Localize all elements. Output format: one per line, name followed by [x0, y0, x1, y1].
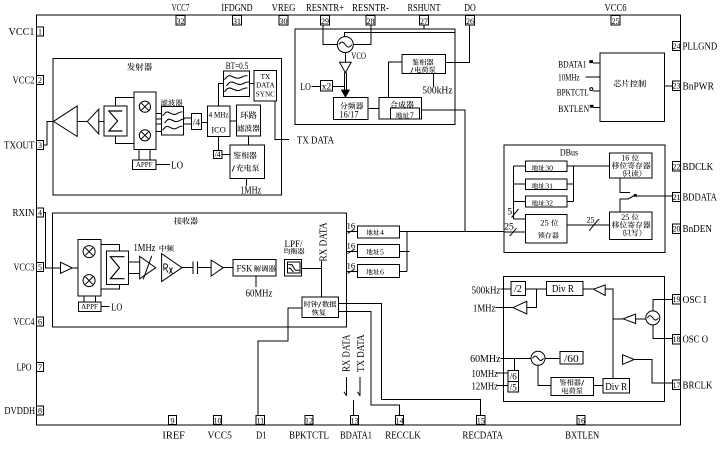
svg-text:D1: D1: [256, 430, 267, 442]
svg-text:60MHz: 60MHz: [470, 354, 501, 365]
svg-text:Div R: Div R: [552, 284, 574, 295]
svg-text:LO: LO: [171, 160, 183, 171]
svg-text:BPKTCTL: BPKTCTL: [557, 88, 589, 99]
svg-text:25: 25: [540, 218, 549, 228]
svg-text:BDCLK: BDCLK: [683, 161, 714, 173]
svg-text:VCC6: VCC6: [605, 2, 627, 14]
svg-text:LPO: LPO: [17, 362, 32, 374]
svg-text:TX: TX: [261, 73, 271, 81]
svg-text:5: 5: [38, 263, 42, 272]
svg-text:10MHz: 10MHz: [558, 72, 580, 83]
svg-text:21: 21: [673, 193, 681, 202]
svg-text:APPF: APPF: [81, 303, 98, 311]
svg-text:VCC7: VCC7: [172, 2, 190, 14]
svg-text:TX DATA: TX DATA: [356, 334, 367, 372]
svg-text:/4: /4: [215, 150, 221, 159]
svg-text:25: 25: [621, 213, 629, 222]
svg-text:SYNC: SYNC: [256, 90, 275, 98]
svg-text:32: 32: [545, 199, 553, 208]
svg-text:16/17: 16/17: [340, 110, 359, 120]
svg-text:25: 25: [504, 222, 514, 232]
svg-text:RECDATA: RECDATA: [462, 430, 503, 442]
svg-text:VCO: VCO: [351, 52, 366, 62]
svg-text:Div R: Div R: [605, 382, 627, 393]
svg-text:23: 23: [673, 82, 681, 91]
svg-text:500kHz: 500kHz: [422, 86, 453, 97]
svg-text:BDDATA: BDDATA: [683, 192, 718, 204]
svg-text:5: 5: [380, 247, 384, 256]
svg-text:12MHz: 12MHz: [472, 382, 499, 393]
svg-text:/2: /2: [514, 284, 522, 295]
svg-text:DO: DO: [464, 2, 476, 14]
svg-text:RXIN: RXIN: [13, 207, 35, 219]
svg-text:2: 2: [38, 76, 42, 85]
svg-text:TX DATA: TX DATA: [297, 136, 335, 147]
svg-text:BXTLEN: BXTLEN: [565, 430, 599, 442]
svg-text:x2: x2: [322, 82, 332, 92]
svg-text:VCC4: VCC4: [14, 316, 35, 328]
svg-text:RX DATA: RX DATA: [342, 334, 353, 372]
svg-text:/5: /5: [510, 382, 518, 392]
svg-text:10MHz: 10MHz: [472, 369, 499, 380]
svg-text:APPF: APPF: [136, 161, 153, 169]
svg-text:17: 17: [673, 381, 681, 390]
svg-text:26: 26: [466, 17, 474, 26]
svg-text:RESNTR+: RESNTR+: [306, 2, 344, 14]
svg-text:500kHz: 500kHz: [472, 285, 501, 296]
svg-text:IREF: IREF: [162, 430, 185, 442]
svg-text:7: 7: [38, 363, 42, 372]
svg-text:PLLGND: PLLGND: [683, 41, 718, 53]
svg-text:60MHz: 60MHz: [246, 288, 273, 299]
svg-text:24: 24: [673, 42, 681, 51]
svg-text:14: 14: [396, 416, 404, 425]
svg-text:FSK: FSK: [237, 263, 253, 273]
svg-text:LO: LO: [111, 303, 122, 314]
svg-text:TXOUT: TXOUT: [4, 140, 35, 152]
svg-text:RX DATA: RX DATA: [318, 222, 329, 262]
svg-text:25: 25: [612, 17, 620, 26]
svg-text:10: 10: [214, 416, 222, 425]
svg-text:BDATA1: BDATA1: [558, 60, 586, 71]
svg-text:ICO: ICO: [211, 124, 226, 134]
svg-text:30: 30: [545, 163, 553, 172]
svg-text:VCC2: VCC2: [13, 75, 35, 87]
svg-text:/60: /60: [564, 354, 579, 365]
svg-text:22: 22: [673, 162, 681, 171]
svg-text:30: 30: [280, 17, 288, 26]
svg-text:VREG: VREG: [272, 2, 296, 14]
svg-text:28: 28: [367, 17, 375, 26]
svg-text:16: 16: [621, 154, 629, 163]
svg-text:25: 25: [587, 215, 595, 224]
svg-text:LO: LO: [300, 82, 311, 93]
svg-text:4: 4: [380, 228, 384, 237]
svg-text:RESNTR-: RESNTR-: [352, 2, 389, 14]
svg-text:1: 1: [38, 28, 42, 37]
svg-text:15: 15: [477, 416, 485, 425]
svg-text:9: 9: [171, 416, 175, 425]
svg-text:16: 16: [577, 416, 585, 425]
svg-text:IFDGND: IFDGND: [221, 2, 252, 14]
svg-text:19: 19: [673, 295, 681, 304]
svg-text:/4: /4: [193, 119, 201, 129]
svg-text:3: 3: [38, 141, 42, 150]
svg-text:13: 13: [351, 416, 359, 425]
svg-text:11: 11: [256, 416, 264, 425]
svg-text:27: 27: [420, 17, 428, 26]
svg-text:LPF/: LPF/: [285, 239, 304, 249]
svg-text:6: 6: [38, 318, 42, 327]
svg-text:31: 31: [233, 17, 241, 26]
svg-text:DVDDH: DVDDH: [4, 405, 35, 417]
svg-text:VCC3: VCC3: [14, 262, 35, 274]
svg-text:6: 6: [380, 267, 384, 276]
svg-text:5: 5: [507, 207, 512, 217]
svg-text:DATA: DATA: [256, 82, 275, 90]
svg-text:4 MHz: 4 MHz: [209, 110, 229, 120]
svg-text:BnPWR: BnPWR: [683, 80, 715, 92]
svg-text:1MHz: 1MHz: [240, 185, 261, 196]
svg-text:VCC5: VCC5: [208, 430, 232, 442]
svg-text:1MHz: 1MHz: [473, 304, 496, 315]
svg-text:20: 20: [673, 225, 681, 234]
svg-text:BDATA1: BDATA1: [340, 430, 372, 442]
svg-text:8: 8: [38, 407, 42, 416]
svg-text:/6: /6: [510, 372, 518, 382]
svg-text:BXTLEN: BXTLEN: [558, 104, 589, 115]
svg-text:31: 31: [545, 181, 553, 190]
svg-text:32: 32: [177, 17, 185, 26]
svg-text:VCC1: VCC1: [9, 26, 35, 38]
svg-text:BPKTCTL: BPKTCTL: [289, 430, 329, 442]
svg-text:DBus: DBus: [560, 148, 579, 158]
svg-text:RSHUNT: RSHUNT: [408, 2, 441, 14]
svg-text:OSC O: OSC O: [683, 334, 709, 346]
svg-text:1MHz: 1MHz: [134, 243, 156, 254]
svg-text:4: 4: [38, 208, 42, 217]
svg-text:7: 7: [410, 111, 414, 120]
svg-text:18: 18: [673, 335, 681, 344]
svg-text:RECCLK: RECCLK: [385, 430, 421, 442]
svg-text:12: 12: [305, 416, 313, 425]
svg-text:BRCLK: BRCLK: [683, 379, 713, 391]
svg-text:BT=0.5: BT=0.5: [226, 62, 249, 72]
svg-text:BnDEN: BnDEN: [683, 223, 713, 235]
svg-text:OSC I: OSC I: [683, 294, 707, 306]
svg-text:29: 29: [321, 17, 329, 26]
